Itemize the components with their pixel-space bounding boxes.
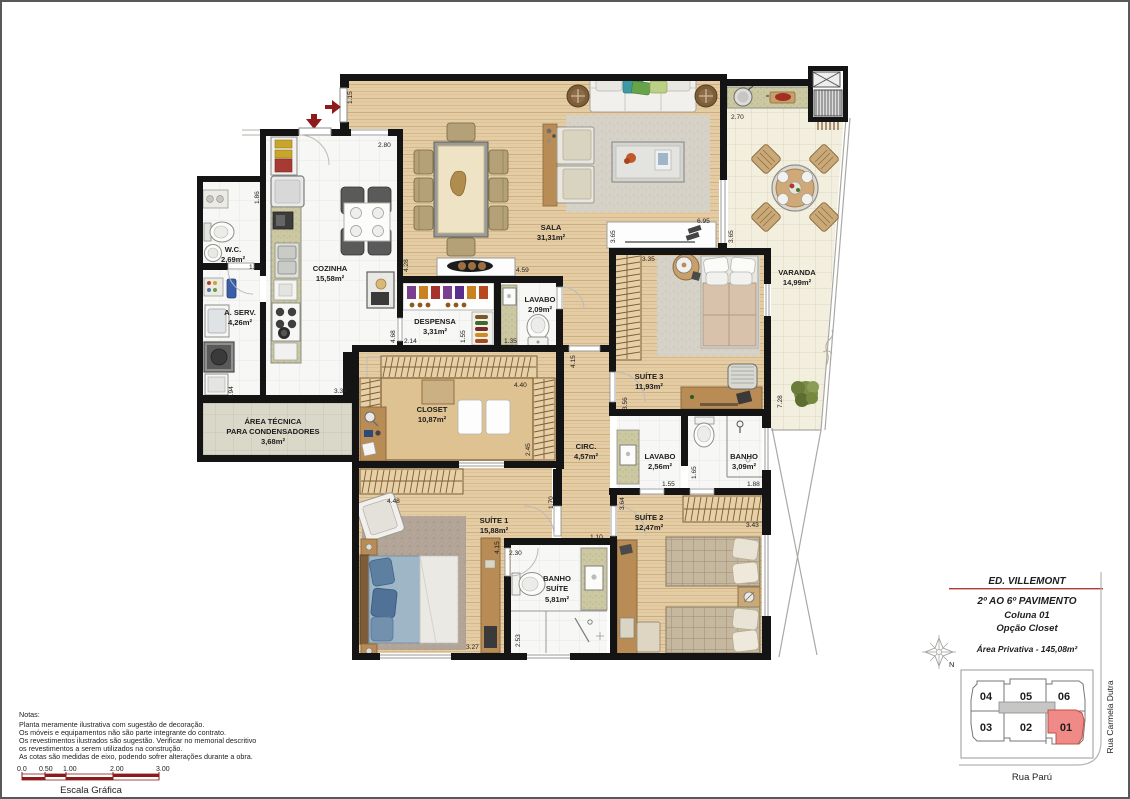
svg-text:VARANDA: VARANDA bbox=[778, 268, 816, 277]
svg-text:3.35: 3.35 bbox=[642, 256, 655, 263]
svg-text:3.56: 3.56 bbox=[622, 397, 629, 410]
svg-text:1.86: 1.86 bbox=[254, 191, 261, 204]
svg-text:3.65: 3.65 bbox=[610, 230, 617, 243]
svg-text:4,26m²: 4,26m² bbox=[228, 318, 253, 327]
svg-text:SUÍTE: SUÍTE bbox=[546, 584, 568, 593]
svg-text:1.00: 1.00 bbox=[63, 766, 77, 773]
svg-text:ED. VILLEMONT: ED. VILLEMONT bbox=[988, 576, 1066, 587]
svg-text:0.0: 0.0 bbox=[17, 766, 27, 773]
svg-text:7.28: 7.28 bbox=[777, 395, 784, 408]
svg-text:6.95: 6.95 bbox=[697, 218, 710, 225]
svg-text:12,47m²: 12,47m² bbox=[635, 523, 664, 532]
svg-text:BANHO: BANHO bbox=[543, 574, 571, 583]
svg-text:2.53: 2.53 bbox=[515, 634, 522, 647]
svg-text:0.50: 0.50 bbox=[39, 766, 53, 773]
svg-text:1.15: 1.15 bbox=[347, 91, 354, 104]
svg-text:2,69m²: 2,69m² bbox=[221, 255, 246, 264]
svg-text:Escala Gráfica: Escala Gráfica bbox=[60, 785, 122, 796]
svg-text:1.65: 1.65 bbox=[691, 466, 698, 479]
svg-text:3.00: 3.00 bbox=[156, 766, 170, 773]
svg-text:SUÍTE 3: SUÍTE 3 bbox=[635, 372, 664, 381]
svg-text:1.35: 1.35 bbox=[504, 338, 517, 345]
svg-text:4.15: 4.15 bbox=[570, 355, 577, 368]
svg-text:BANHO: BANHO bbox=[730, 452, 758, 461]
svg-text:2,09m²: 2,09m² bbox=[528, 305, 553, 314]
svg-text:2.70: 2.70 bbox=[731, 114, 744, 121]
svg-text:SUÍTE 1: SUÍTE 1 bbox=[480, 516, 509, 525]
svg-text:10,87m²: 10,87m² bbox=[418, 415, 447, 424]
svg-text:3.65: 3.65 bbox=[728, 230, 735, 243]
svg-text:5,81m²: 5,81m² bbox=[545, 595, 570, 604]
svg-text:05: 05 bbox=[1020, 691, 1032, 703]
svg-text:11,93m²: 11,93m² bbox=[635, 382, 663, 391]
svg-text:N: N bbox=[949, 660, 954, 669]
svg-text:2º AO 6º PAVIMENTO: 2º AO 6º PAVIMENTO bbox=[976, 596, 1076, 607]
svg-text:1.55: 1.55 bbox=[460, 330, 467, 343]
svg-text:2.30: 2.30 bbox=[509, 550, 522, 557]
svg-text:3,68m²: 3,68m² bbox=[261, 437, 286, 446]
svg-text:1.70: 1.70 bbox=[548, 496, 555, 509]
svg-text:DESPENSA: DESPENSA bbox=[414, 317, 456, 326]
svg-text:Notas:: Notas: bbox=[19, 710, 40, 719]
svg-text:Rua Parú: Rua Parú bbox=[1012, 772, 1052, 783]
svg-text:Coluna 01: Coluna 01 bbox=[1004, 610, 1049, 621]
svg-text:2.94: 2.94 bbox=[228, 386, 235, 399]
svg-text:W.C.: W.C. bbox=[225, 245, 241, 254]
svg-text:1.45: 1.45 bbox=[249, 264, 262, 271]
svg-text:3.34: 3.34 bbox=[334, 388, 347, 395]
svg-text:As cotas são medidas de eixo,: As cotas são medidas de eixo, podendo so… bbox=[19, 752, 253, 761]
svg-text:SUÍTE 2: SUÍTE 2 bbox=[635, 513, 664, 522]
svg-text:2.45: 2.45 bbox=[525, 443, 532, 456]
svg-text:1.10: 1.10 bbox=[590, 534, 603, 541]
svg-text:4.68: 4.68 bbox=[390, 330, 397, 343]
svg-text:14,99m²: 14,99m² bbox=[783, 278, 812, 287]
svg-text:LAVABO: LAVABO bbox=[525, 295, 556, 304]
svg-text:2.00: 2.00 bbox=[110, 766, 124, 773]
svg-text:15,58m²: 15,58m² bbox=[316, 274, 345, 283]
svg-text:1.55: 1.55 bbox=[662, 481, 675, 488]
svg-text:COZINHA: COZINHA bbox=[313, 264, 348, 273]
svg-text:Rua Carmela Dutra: Rua Carmela Dutra bbox=[1105, 680, 1115, 753]
svg-text:A. SERV.: A. SERV. bbox=[224, 308, 256, 317]
svg-text:CLOSET: CLOSET bbox=[417, 405, 448, 414]
svg-text:4.15: 4.15 bbox=[494, 541, 501, 554]
svg-text:01: 01 bbox=[1060, 722, 1072, 734]
svg-text:06: 06 bbox=[1058, 691, 1070, 703]
svg-text:03: 03 bbox=[980, 722, 992, 734]
svg-text:LAVABO: LAVABO bbox=[645, 452, 676, 461]
svg-text:4.40: 4.40 bbox=[514, 382, 527, 389]
svg-text:4.48: 4.48 bbox=[387, 498, 400, 505]
svg-text:SALA: SALA bbox=[541, 223, 562, 232]
svg-text:3,31m²: 3,31m² bbox=[423, 327, 448, 336]
svg-text:2,56m²: 2,56m² bbox=[648, 462, 673, 471]
svg-text:Opção Closet: Opção Closet bbox=[996, 623, 1058, 634]
svg-text:4.28: 4.28 bbox=[403, 259, 410, 272]
svg-text:3.64: 3.64 bbox=[619, 497, 626, 510]
svg-text:3.27: 3.27 bbox=[466, 644, 479, 651]
svg-text:3,09m²: 3,09m² bbox=[732, 462, 757, 471]
svg-text:ÁREA TÉCNICA: ÁREA TÉCNICA bbox=[244, 417, 302, 426]
svg-text:04: 04 bbox=[980, 691, 993, 703]
svg-text:PARA CONDENSADORES: PARA CONDENSADORES bbox=[226, 427, 319, 436]
svg-text:4,57m²: 4,57m² bbox=[574, 452, 599, 461]
svg-text:2.80: 2.80 bbox=[378, 142, 391, 149]
svg-text:02: 02 bbox=[1020, 722, 1032, 734]
svg-text:15,88m²: 15,88m² bbox=[480, 526, 509, 535]
svg-text:31,31m²: 31,31m² bbox=[537, 233, 566, 242]
svg-text:CIRC.: CIRC. bbox=[576, 442, 597, 451]
svg-text:4.59: 4.59 bbox=[516, 267, 529, 274]
svg-text:3.43: 3.43 bbox=[746, 522, 759, 529]
svg-text:Área Privativa - 145,08m²: Área Privativa - 145,08m² bbox=[976, 644, 1079, 654]
svg-text:1.88: 1.88 bbox=[747, 481, 760, 488]
svg-text:2.14: 2.14 bbox=[404, 338, 417, 345]
